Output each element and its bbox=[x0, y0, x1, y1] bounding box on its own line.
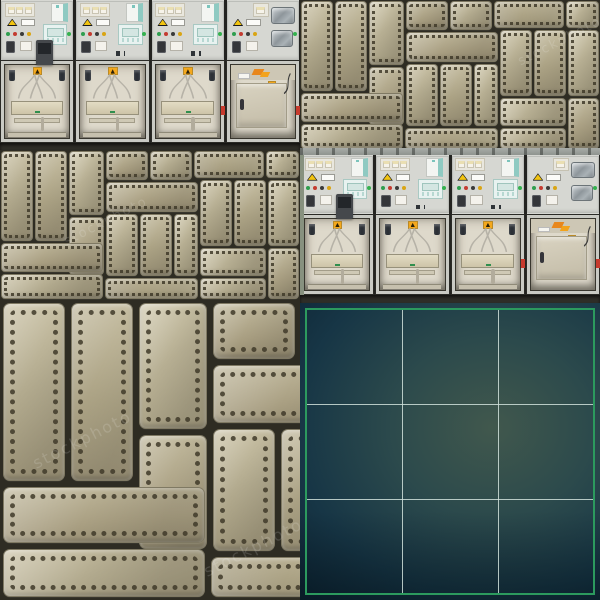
digital-meter bbox=[36, 40, 53, 66]
test-socket bbox=[170, 41, 182, 51]
drain-pipe bbox=[191, 117, 194, 132]
compartment-interior bbox=[5, 65, 69, 138]
cable-connector-pack bbox=[571, 185, 593, 202]
white-label bbox=[238, 73, 250, 79]
cable-connector-pack bbox=[271, 7, 296, 24]
warning-triangle-inner bbox=[308, 174, 316, 180]
protection-relay bbox=[418, 179, 443, 199]
lower-shelf bbox=[14, 118, 60, 123]
relay-module-upper bbox=[426, 158, 443, 177]
rivet-plate bbox=[269, 181, 298, 245]
busbar-box bbox=[311, 254, 364, 268]
tile-switchgear-photo-2[interactable] bbox=[300, 148, 600, 303]
rivet-plate bbox=[141, 215, 171, 275]
compartment-interior bbox=[156, 65, 220, 138]
fuse-module bbox=[325, 161, 332, 168]
indicator-light bbox=[171, 32, 175, 36]
grid-line-vertical bbox=[498, 310, 499, 593]
rivet-plate bbox=[501, 99, 565, 125]
indicator-light bbox=[246, 32, 250, 36]
rivet-plate bbox=[302, 94, 402, 121]
tile-switchgear-photo-1[interactable] bbox=[0, 0, 300, 150]
test-socket bbox=[470, 195, 482, 205]
status-led bbox=[593, 186, 597, 190]
rivet-plate bbox=[451, 2, 491, 29]
rivet-dots bbox=[78, 310, 126, 474]
rivet-dots bbox=[108, 281, 195, 296]
rivet-plate bbox=[569, 31, 598, 95]
rivet-dots bbox=[503, 101, 563, 123]
rivet-dots bbox=[288, 436, 300, 544]
rivet-plate bbox=[195, 152, 263, 177]
control-switch bbox=[381, 195, 390, 207]
rivet-dots bbox=[503, 131, 563, 146]
indicator-light bbox=[102, 32, 106, 36]
crop-grid-frame bbox=[305, 308, 595, 595]
switchgear-cabinet bbox=[76, 0, 148, 143]
indicator-light bbox=[313, 186, 317, 190]
warning-triangle-inner bbox=[383, 174, 391, 180]
rivet-dots bbox=[271, 183, 296, 243]
rivet-plate bbox=[2, 152, 32, 240]
indicator-light bbox=[464, 186, 468, 190]
status-led bbox=[442, 186, 446, 190]
red-cap bbox=[521, 259, 525, 268]
busbar-box bbox=[86, 101, 139, 116]
warning-triangle-inner bbox=[459, 174, 467, 180]
grid-line-horizontal bbox=[307, 499, 593, 500]
control-panel bbox=[527, 156, 599, 213]
fuse-module bbox=[308, 161, 315, 168]
panel-buttons bbox=[116, 51, 125, 56]
lower-shelf bbox=[164, 118, 210, 123]
rivet-dots bbox=[271, 251, 296, 296]
cable-connector-pack bbox=[571, 162, 596, 179]
warning-triangle-icon bbox=[82, 19, 93, 27]
rivet-plate bbox=[214, 366, 300, 422]
green-tag bbox=[410, 264, 415, 266]
nameplate-label bbox=[246, 19, 260, 26]
tile-rivet-texture-3[interactable]: stockphoto stockphoto bbox=[0, 300, 300, 600]
cable-compartment bbox=[452, 215, 524, 294]
cable-compartment bbox=[1, 61, 73, 142]
rivet-plate bbox=[235, 181, 265, 245]
bottom-rail bbox=[308, 284, 366, 288]
protection-relay bbox=[493, 179, 518, 199]
control-switch bbox=[457, 195, 466, 207]
rivet-dots bbox=[569, 4, 596, 25]
rivet-plate bbox=[2, 244, 102, 271]
green-tag bbox=[335, 264, 340, 266]
cable-compartment bbox=[376, 215, 448, 294]
rivet-plate bbox=[175, 215, 197, 275]
warning-triangle-icon bbox=[7, 19, 18, 27]
green-tag bbox=[486, 264, 491, 266]
compartment-interior bbox=[531, 219, 595, 290]
indicator-light bbox=[88, 32, 92, 36]
wall-edge bbox=[300, 155, 304, 295]
fuse-module bbox=[475, 161, 482, 168]
fuse-module bbox=[8, 7, 15, 14]
rivet-plate bbox=[569, 99, 598, 148]
rivet-dots bbox=[10, 310, 58, 474]
cable-compartment bbox=[227, 61, 299, 142]
fuse-module bbox=[16, 7, 23, 14]
drain-pipe bbox=[341, 269, 344, 283]
rivet-dots bbox=[220, 310, 288, 352]
fuse-module bbox=[83, 7, 90, 14]
rivet-plate bbox=[140, 304, 206, 428]
warning-triangle-icon bbox=[307, 173, 318, 180]
protection-relay bbox=[193, 24, 218, 45]
indicator-light bbox=[253, 32, 257, 36]
rivet-plate bbox=[370, 2, 403, 64]
warning-triangle-inner bbox=[159, 20, 167, 26]
fuse-module bbox=[25, 7, 32, 14]
nameplate-label bbox=[396, 174, 410, 181]
fuse-module bbox=[167, 7, 174, 14]
nameplate-label bbox=[171, 19, 185, 26]
rivet-dots bbox=[218, 564, 300, 590]
drain-pipe bbox=[116, 117, 119, 132]
cable-connector-pack bbox=[271, 30, 293, 47]
tile-rivet-texture-1[interactable]: stockphoto bbox=[300, 0, 600, 148]
rivet-dots bbox=[143, 217, 169, 273]
indicator-ticks bbox=[507, 160, 512, 162]
control-panel bbox=[376, 156, 448, 213]
fuse-module bbox=[458, 161, 465, 168]
rivet-dots bbox=[571, 33, 596, 93]
cabinet-row bbox=[0, 0, 300, 143]
rivet-plate bbox=[4, 304, 64, 480]
control-panel bbox=[152, 1, 224, 60]
indicator-light bbox=[539, 186, 543, 190]
fuse-module-tray bbox=[5, 3, 35, 16]
meter-display bbox=[338, 197, 351, 208]
indicator-ticks bbox=[56, 5, 61, 7]
rivet-plate bbox=[4, 550, 204, 596]
status-led bbox=[518, 186, 522, 190]
cable-compartment bbox=[152, 61, 224, 142]
bottom-rail bbox=[8, 132, 66, 136]
indicator-ticks bbox=[207, 5, 212, 7]
nameplate-label bbox=[21, 19, 35, 26]
cable-compartment bbox=[527, 215, 599, 294]
green-tag bbox=[35, 111, 40, 114]
control-switch bbox=[532, 195, 541, 207]
indicator-light bbox=[164, 32, 168, 36]
switchgear-cabinet bbox=[301, 155, 373, 295]
switchgear-cabinet bbox=[1, 0, 73, 143]
rivet-dots bbox=[4, 277, 100, 296]
busbar-box bbox=[461, 254, 514, 268]
indicator-light bbox=[27, 32, 31, 36]
indicator-light bbox=[553, 186, 557, 190]
rivet-dots bbox=[497, 4, 561, 25]
control-switch bbox=[6, 41, 15, 53]
drain-pipe bbox=[491, 269, 494, 283]
white-label bbox=[538, 227, 550, 233]
relay-display bbox=[347, 183, 364, 191]
busbar-box bbox=[11, 101, 64, 116]
image-collage: stockphoto stockphoto stockphoto stockph… bbox=[0, 0, 600, 600]
indicator-light bbox=[381, 186, 385, 190]
fuse-module bbox=[92, 7, 99, 14]
warning-triangle-inner bbox=[534, 174, 542, 180]
indicator-light bbox=[95, 32, 99, 36]
indicator-light bbox=[320, 186, 324, 190]
rivet-dots bbox=[10, 556, 198, 590]
test-socket bbox=[95, 41, 107, 51]
relay-keys bbox=[422, 192, 439, 196]
warning-triangle-inner bbox=[83, 20, 91, 26]
indicator-light bbox=[232, 32, 236, 36]
tile-rivet-texture-2[interactable]: stockphoto bbox=[0, 150, 300, 300]
rivet-dots bbox=[304, 127, 400, 146]
rivet-plate bbox=[107, 152, 147, 179]
rivet-plate bbox=[501, 31, 531, 95]
rivet-dots bbox=[443, 67, 469, 123]
relay-keys bbox=[122, 38, 139, 42]
rivet-dots bbox=[269, 154, 296, 175]
switchgear-cabinet bbox=[452, 155, 524, 295]
rivet-plate bbox=[282, 430, 300, 550]
grid-line-vertical bbox=[402, 310, 403, 593]
rivet-plate bbox=[495, 2, 563, 27]
bottom-rail bbox=[383, 284, 441, 288]
rivet-plate bbox=[407, 65, 437, 125]
panel-buttons bbox=[491, 205, 500, 210]
rivet-dots bbox=[153, 154, 189, 177]
relay-keys bbox=[497, 192, 514, 196]
relay-display bbox=[122, 28, 139, 36]
ceiling-strip bbox=[300, 148, 600, 155]
door-handle bbox=[540, 252, 544, 263]
compartment-interior bbox=[305, 219, 369, 290]
indicator-light bbox=[20, 32, 24, 36]
rivet-dots bbox=[38, 154, 64, 238]
rivet-dots bbox=[4, 246, 100, 269]
floor-strip bbox=[0, 143, 300, 150]
relay-display bbox=[197, 28, 214, 36]
rivet-plate bbox=[267, 152, 298, 177]
rivet-plate bbox=[336, 2, 366, 90]
rivet-dots bbox=[503, 33, 529, 93]
indicator-light bbox=[478, 186, 482, 190]
meter-display bbox=[38, 43, 51, 54]
rivet-dots bbox=[109, 217, 135, 273]
fuse-module bbox=[467, 161, 474, 168]
indicator-ticks bbox=[132, 5, 137, 7]
status-led bbox=[218, 32, 222, 36]
indicator-light bbox=[6, 32, 10, 36]
warning-triangle-icon bbox=[533, 173, 544, 180]
rivet-dots bbox=[197, 154, 261, 175]
rivet-dots bbox=[338, 4, 364, 88]
indicator-lights bbox=[532, 186, 562, 191]
rivet-dots bbox=[109, 154, 145, 177]
busbar-box bbox=[386, 254, 439, 268]
rivet-plate bbox=[106, 279, 197, 298]
control-panel bbox=[301, 156, 373, 213]
rivet-plate bbox=[535, 31, 565, 95]
warning-triangle-inner bbox=[8, 20, 16, 26]
rivet-dots bbox=[203, 251, 263, 273]
rivet-dots bbox=[372, 4, 401, 62]
rivet-plate bbox=[269, 249, 298, 298]
rivet-plate bbox=[107, 215, 137, 275]
status-led bbox=[67, 32, 71, 36]
indicator-light bbox=[395, 186, 399, 190]
rivet-plate bbox=[2, 275, 102, 298]
indicator-lights bbox=[81, 31, 111, 36]
rivet-dots bbox=[453, 4, 489, 27]
rivet-plate bbox=[407, 2, 447, 29]
panel-buttons bbox=[416, 205, 425, 210]
fuse-module bbox=[392, 161, 399, 168]
rivet-dots bbox=[304, 4, 330, 88]
fuse-module bbox=[316, 161, 323, 168]
rivet-dots bbox=[4, 154, 30, 238]
rivet-plate bbox=[475, 65, 497, 125]
indicator-lights bbox=[381, 186, 411, 191]
nameplate-label bbox=[321, 174, 335, 181]
indicator-lights bbox=[457, 186, 487, 191]
bottom-rail bbox=[159, 132, 217, 136]
rivet-dots bbox=[409, 67, 435, 123]
rivet-dots bbox=[203, 183, 229, 243]
warning-triangle-icon bbox=[157, 19, 168, 27]
fuse-module bbox=[158, 7, 165, 14]
door-cable-icon bbox=[268, 70, 294, 110]
red-cap bbox=[221, 106, 225, 115]
rivet-dots bbox=[109, 185, 195, 209]
protection-relay bbox=[118, 24, 143, 45]
rivet-plate bbox=[4, 488, 204, 542]
test-socket bbox=[546, 195, 558, 205]
indicator-light bbox=[388, 186, 392, 190]
rivet-plate bbox=[151, 152, 191, 179]
compartment-interior bbox=[380, 219, 444, 290]
relay-module-upper bbox=[201, 3, 218, 22]
relay-display bbox=[497, 183, 514, 191]
lower-shelf bbox=[89, 118, 135, 123]
fuse-module bbox=[400, 161, 407, 168]
warning-triangle-icon bbox=[382, 173, 393, 180]
busbar-box bbox=[161, 101, 214, 116]
bottom-rail bbox=[459, 284, 517, 288]
test-socket bbox=[246, 41, 258, 51]
rivet-dots bbox=[10, 494, 198, 536]
lower-shelf bbox=[464, 270, 510, 275]
fuse-module bbox=[175, 7, 182, 14]
status-led bbox=[367, 186, 371, 190]
rivet-dots bbox=[304, 96, 400, 119]
rivet-plate bbox=[201, 249, 265, 275]
fuse-module-tray bbox=[305, 158, 335, 171]
rivet-plate bbox=[441, 65, 471, 125]
door-handle bbox=[240, 99, 244, 110]
nameplate-label bbox=[546, 174, 560, 181]
rivet-dots bbox=[409, 4, 445, 27]
switchgear-cabinet bbox=[376, 155, 448, 295]
switchgear-cabinet bbox=[527, 155, 599, 295]
relay-module-upper bbox=[351, 158, 368, 177]
cable-compartment bbox=[301, 215, 373, 294]
rivet-dots bbox=[571, 101, 596, 146]
indicator-light bbox=[471, 186, 475, 190]
rivet-dots bbox=[237, 183, 263, 243]
lower-shelf bbox=[389, 270, 435, 275]
rivet-dots bbox=[220, 372, 300, 416]
green-tag bbox=[110, 111, 115, 114]
fuse-module-tray bbox=[380, 158, 410, 171]
indicator-light bbox=[157, 32, 161, 36]
panel-buttons bbox=[191, 51, 200, 56]
nameplate-label bbox=[471, 174, 485, 181]
rivet-dots bbox=[477, 67, 495, 123]
warning-triangle-inner bbox=[234, 20, 242, 26]
rivet-plate bbox=[567, 2, 598, 27]
tile-grid-panel[interactable] bbox=[300, 303, 600, 600]
rivet-dots bbox=[220, 436, 268, 544]
relay-keys bbox=[197, 38, 214, 42]
rivet-dots bbox=[203, 281, 263, 296]
control-switch bbox=[81, 41, 90, 53]
indicator-lights bbox=[157, 31, 187, 36]
indicator-light bbox=[457, 186, 461, 190]
rivet-plate bbox=[406, 129, 497, 148]
rivet-plate bbox=[407, 33, 497, 61]
indicator-light bbox=[327, 186, 331, 190]
test-socket bbox=[320, 195, 332, 205]
compartment-interior bbox=[456, 219, 520, 290]
rivet-dots bbox=[409, 35, 495, 59]
cable-compartment bbox=[76, 61, 148, 142]
switchgear-cabinet bbox=[152, 0, 224, 143]
green-tag bbox=[186, 111, 191, 114]
indicator-light bbox=[306, 186, 310, 190]
switchgear-cabinet bbox=[227, 0, 299, 143]
compartment-interior bbox=[80, 65, 144, 138]
red-cap bbox=[596, 259, 600, 268]
rivet-plate bbox=[70, 152, 103, 214]
control-panel bbox=[227, 1, 299, 60]
fuse-module bbox=[100, 7, 107, 14]
rivet-plate bbox=[302, 125, 402, 148]
indicator-ticks bbox=[432, 160, 437, 162]
rivet-plate bbox=[201, 279, 265, 298]
door-cable-icon bbox=[568, 223, 594, 262]
rivet-dots bbox=[72, 154, 101, 212]
rivet-plate bbox=[501, 129, 565, 148]
drain-pipe bbox=[41, 117, 44, 132]
indicator-light bbox=[532, 186, 536, 190]
fuse-module-tray bbox=[553, 158, 569, 171]
bottom-rail bbox=[83, 132, 141, 136]
relay-module-upper bbox=[51, 3, 68, 22]
control-switch bbox=[306, 195, 315, 207]
relay-module-upper bbox=[126, 3, 143, 22]
control-switch bbox=[232, 41, 241, 53]
rivet-dots bbox=[146, 310, 200, 422]
rivet-plate bbox=[201, 181, 231, 245]
fuse-module bbox=[256, 7, 266, 14]
indicator-light bbox=[402, 186, 406, 190]
indicator-lights bbox=[232, 31, 262, 36]
fuse-module bbox=[383, 161, 390, 168]
grid-line-horizontal bbox=[307, 404, 593, 405]
